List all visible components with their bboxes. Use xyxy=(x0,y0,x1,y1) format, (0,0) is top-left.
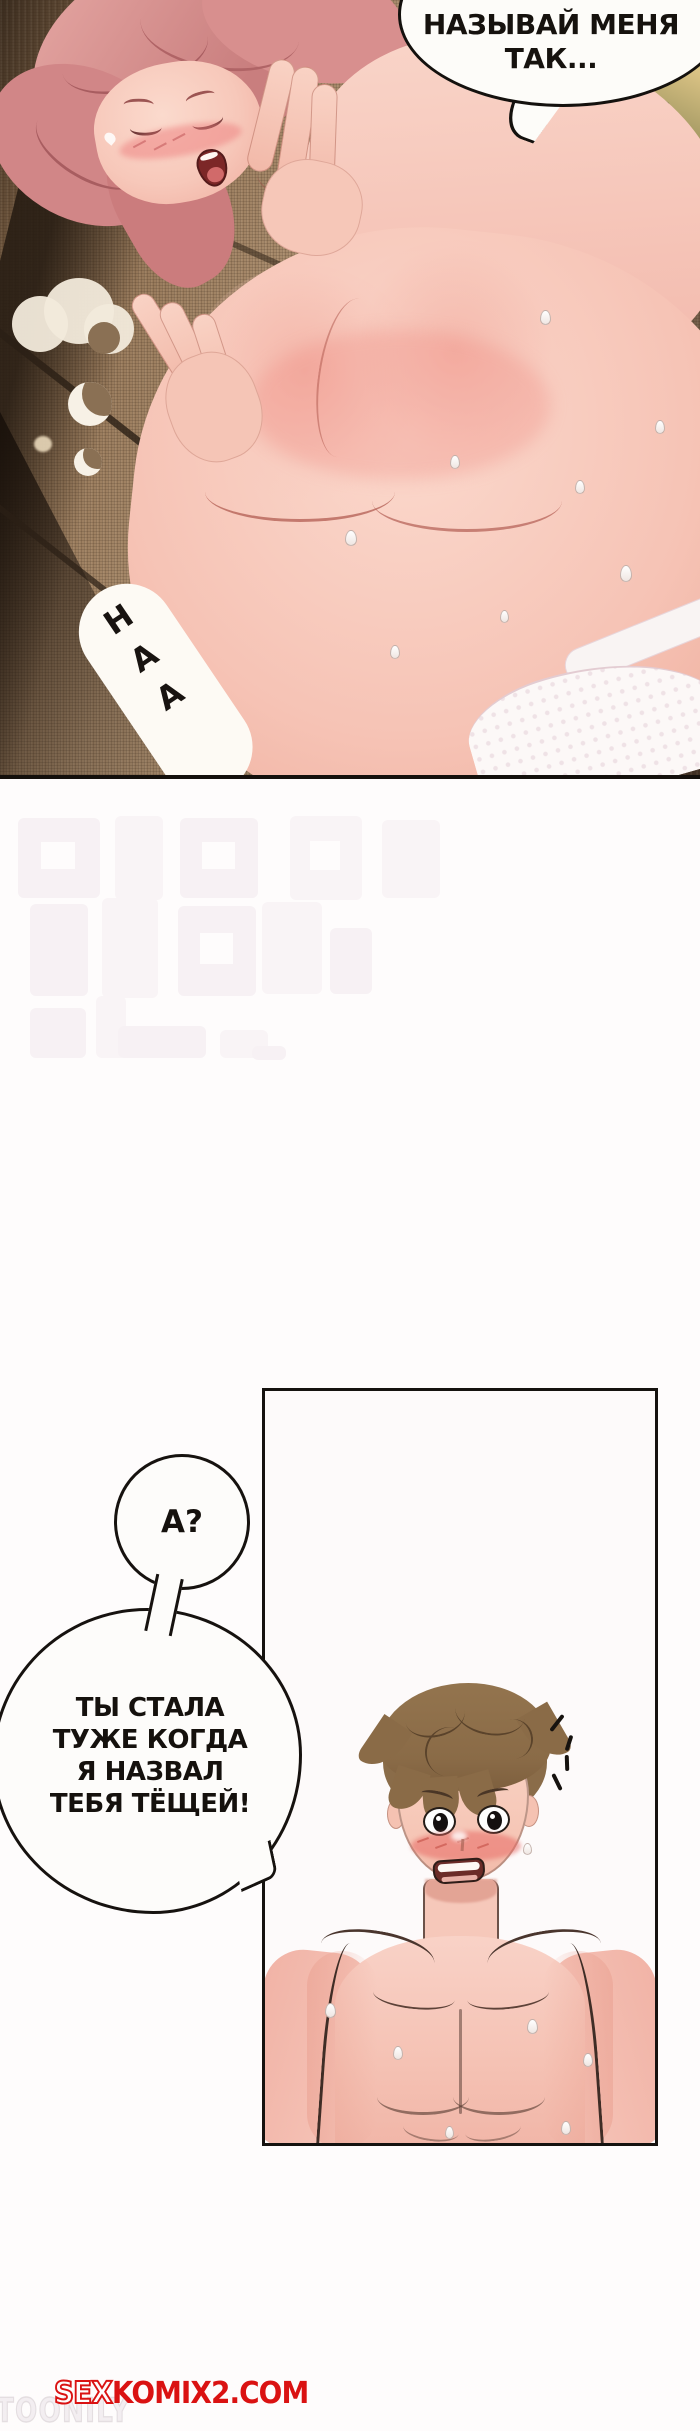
sweat-drop xyxy=(390,645,400,659)
ghost-sfx-block xyxy=(30,904,88,996)
eyebrow xyxy=(124,99,154,111)
speech-line: Я НАЗВАЛ xyxy=(8,1756,292,1788)
chest-blush xyxy=(250,330,550,480)
ghost-sfx xyxy=(0,808,700,1078)
eye xyxy=(477,1805,510,1834)
nose-highlight xyxy=(451,1831,467,1841)
ghost-sfx-block xyxy=(180,818,258,898)
ghost-sfx-block xyxy=(262,902,322,994)
pupil xyxy=(433,1813,448,1832)
ghost-sfx-block xyxy=(18,818,100,898)
steam-crescent xyxy=(68,382,112,426)
speech-bubble-text: ТЫ СТАЛА ТУЖЕ КОГДА Я НАЗВАЛ ТЕБЯ ТЁЩЕЙ! xyxy=(8,1692,292,1820)
ghost-sfx-block xyxy=(115,816,163,900)
sweat-drop xyxy=(655,420,665,434)
surprise-mark xyxy=(551,1773,562,1791)
sweat-drop xyxy=(450,455,460,469)
teeth xyxy=(437,1862,479,1873)
comic-panel-2 xyxy=(262,1388,658,2146)
ghost-sfx-block xyxy=(30,1008,86,1058)
site-watermark: SEXKOMIX2.COM xyxy=(54,2376,308,2411)
surprise-mark xyxy=(565,1755,570,1771)
site-watermark-rest: KOMIX2.COM xyxy=(112,2376,308,2411)
ghost-sfx-block xyxy=(290,816,362,900)
speech-line: ТУЖЕ КОГДА xyxy=(8,1724,292,1756)
sweat-drop xyxy=(445,2126,454,2139)
sweat-drop xyxy=(620,565,632,582)
sweat-drop xyxy=(325,2003,336,2018)
sweat-drop xyxy=(102,130,118,145)
ghost-sfx-block xyxy=(178,906,256,996)
speech-text: А? xyxy=(161,1504,203,1540)
eyebrow xyxy=(184,88,216,108)
speech-bubble-text: НАЗЫВАЙ МЕНЯ ТАК... xyxy=(398,8,700,76)
teeth xyxy=(441,1875,477,1882)
steam-cloud-notch xyxy=(88,322,120,354)
speech-line: ТЫ СТАЛА xyxy=(8,1692,292,1724)
sweat-drop xyxy=(527,2019,538,2034)
sweat-drop xyxy=(523,1843,532,1855)
sweat-drop xyxy=(575,480,585,494)
ghost-sfx-block xyxy=(102,898,158,998)
ghost-sfx-block xyxy=(382,820,440,898)
sweat-drop xyxy=(583,2053,593,2067)
speech-line: ТАК... xyxy=(398,42,700,76)
body-crease-line xyxy=(205,462,395,522)
eye-highlight xyxy=(490,1814,495,1819)
speech-bubble-small: А? xyxy=(114,1454,250,1590)
sweat-drop xyxy=(393,2046,403,2060)
eye-highlight xyxy=(436,1816,441,1821)
sweat-drop xyxy=(561,2121,571,2135)
body-crease-line xyxy=(372,470,562,532)
pupil xyxy=(487,1811,502,1830)
sweat-drop xyxy=(540,310,551,325)
sweat-drop xyxy=(500,610,509,623)
steam-dot xyxy=(34,436,52,452)
comic-page: НАЗЫВАЙ МЕНЯ ТАК... НАА xyxy=(0,0,700,2431)
ghost-sfx-block xyxy=(330,928,372,994)
speech-line: ТЕБЯ ТЁЩЕЙ! xyxy=(8,1788,292,1820)
grimace-mouth xyxy=(432,1857,486,1885)
sweat-drop xyxy=(345,530,357,546)
speech-line: НАЗЫВАЙ МЕНЯ xyxy=(398,8,700,42)
ghost-sfx-block xyxy=(118,1026,206,1058)
steam-crescent xyxy=(74,448,102,476)
site-watermark-prefix: SEX xyxy=(54,2376,112,2411)
chest-line xyxy=(453,2079,545,2115)
ghost-sfx-block xyxy=(252,1046,286,1060)
teeth xyxy=(200,151,219,162)
comic-panel-1: НАЗЫВАЙ МЕНЯ ТАК... НАА xyxy=(0,0,700,779)
tongue xyxy=(205,165,226,185)
